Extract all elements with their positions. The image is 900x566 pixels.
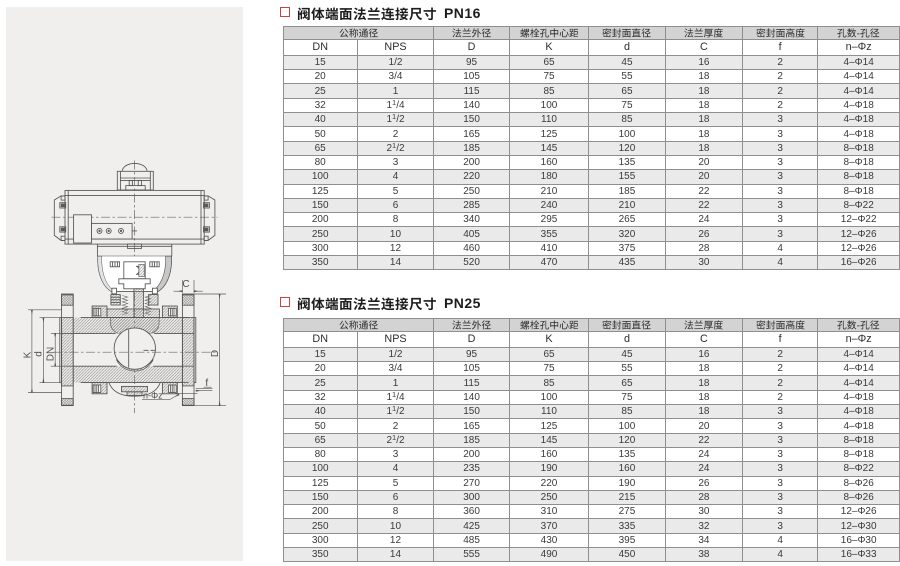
svg-text:DN: DN bbox=[46, 347, 57, 361]
svg-text:f: f bbox=[205, 378, 208, 389]
svg-text:D: D bbox=[210, 350, 221, 357]
svg-text:C: C bbox=[182, 279, 189, 290]
svg-text:K: K bbox=[23, 351, 34, 358]
svg-text:d: d bbox=[34, 351, 45, 357]
svg-text:n-Φz: n-Φz bbox=[143, 390, 163, 400]
